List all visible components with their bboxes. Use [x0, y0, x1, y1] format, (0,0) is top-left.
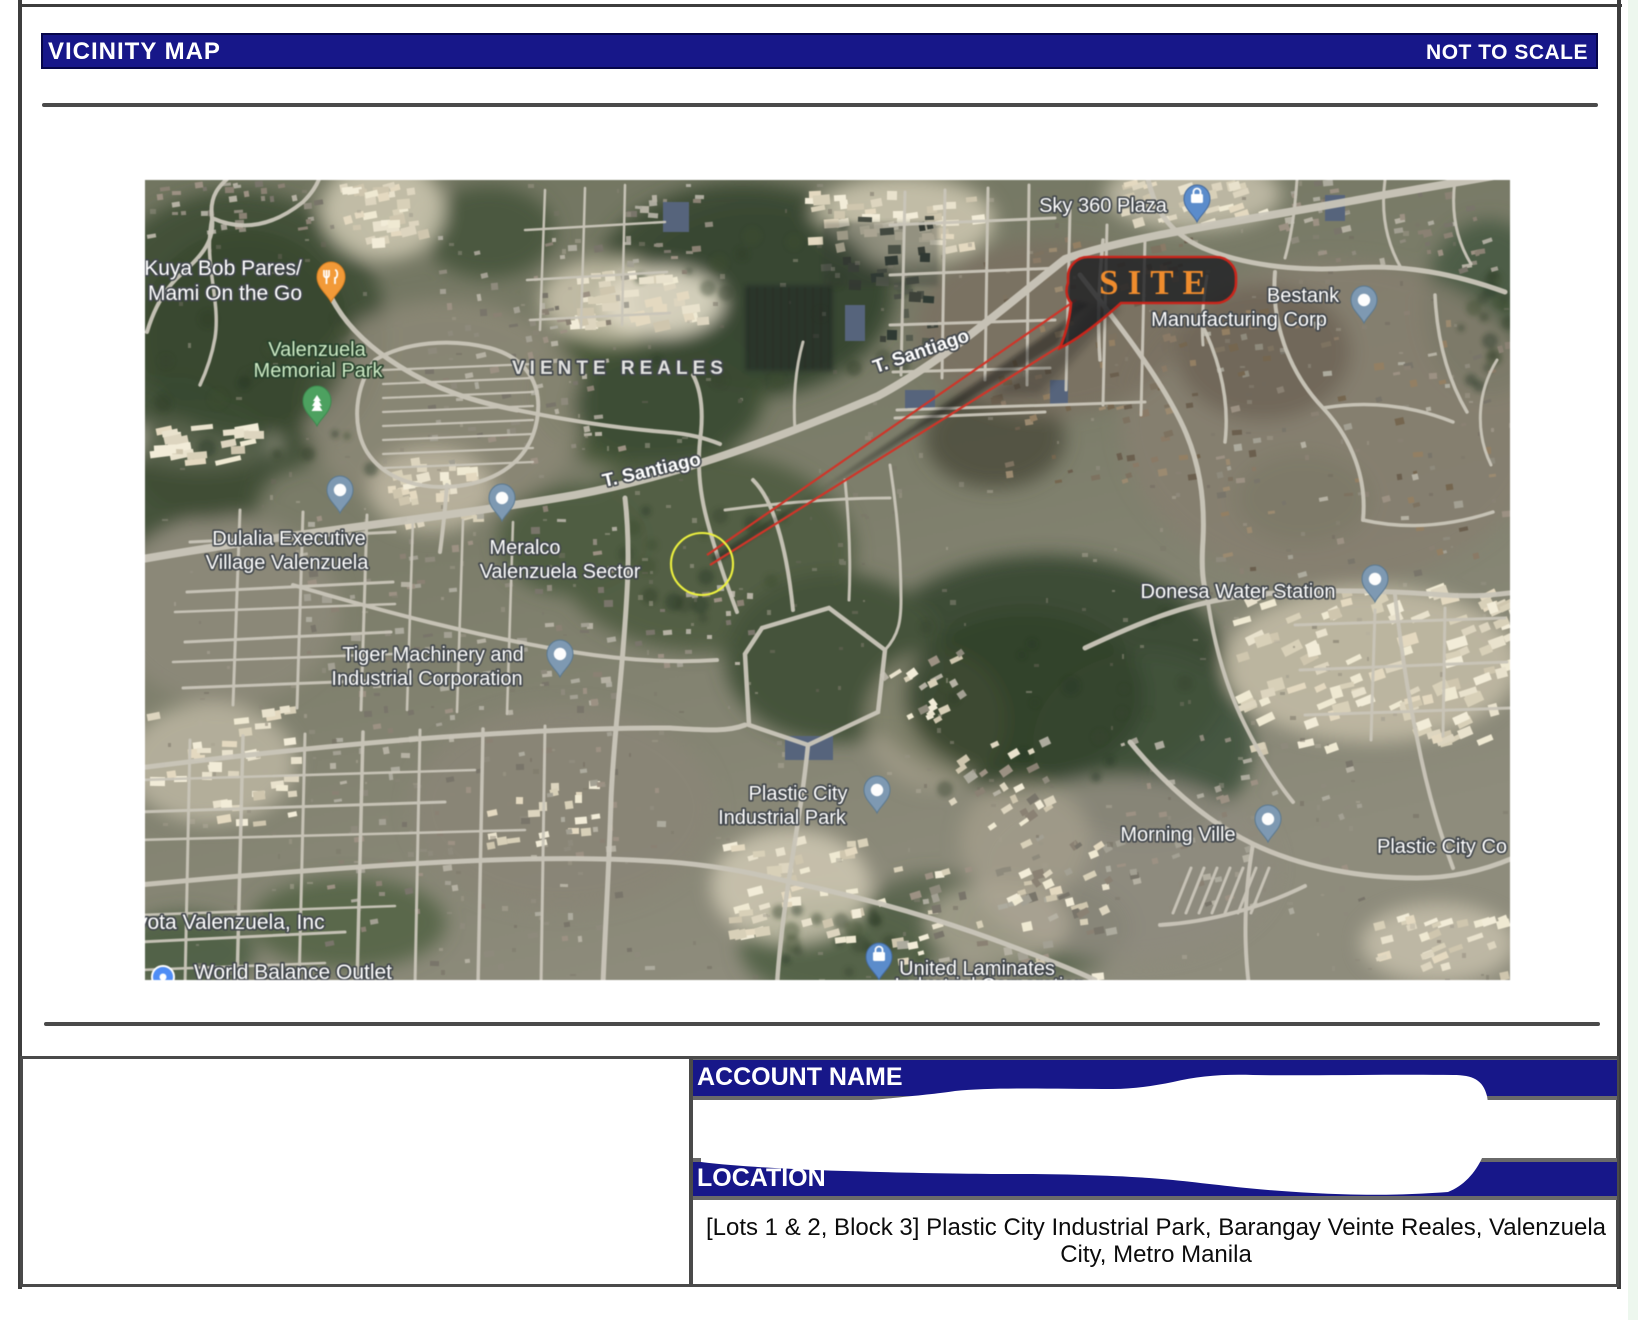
- svg-text:Morning Ville: Morning Ville: [1120, 824, 1235, 846]
- svg-text:Mami On the Go: Mami On the Go: [148, 282, 302, 305]
- svg-text:Industrial Corporation: Industrial Corporation: [894, 975, 1085, 980]
- svg-text:Manufacturing Corp: Manufacturing Corp: [1151, 309, 1327, 331]
- svg-text:SITE: SITE: [1099, 263, 1215, 302]
- svg-text:Valenzuela Sector: Valenzuela Sector: [480, 561, 641, 583]
- svg-text:Kuya Bob Pares/: Kuya Bob Pares/: [145, 257, 302, 280]
- svg-text:Memorial Park: Memorial Park: [254, 360, 384, 382]
- svg-text:VIENTE REALES: VIENTE REALES: [512, 358, 728, 379]
- svg-text:Plastic City: Plastic City: [749, 783, 848, 805]
- svg-text:Donesa Water Station: Donesa Water Station: [1141, 581, 1336, 603]
- svg-text:Bestank: Bestank: [1267, 285, 1340, 307]
- svg-text:Industrial Park: Industrial Park: [718, 807, 847, 829]
- svg-text:Tiger Machinery and: Tiger Machinery and: [342, 644, 524, 666]
- svg-text:Dulalia Executive: Dulalia Executive: [212, 528, 365, 550]
- svg-text:Sky 360 Plaza: Sky 360 Plaza: [1039, 195, 1168, 217]
- svg-text:Meralco: Meralco: [489, 537, 560, 559]
- svg-text:Valenzuela: Valenzuela: [268, 339, 366, 361]
- svg-text:World Balance Outlet: World Balance Outlet: [194, 961, 392, 980]
- svg-text:Plastic City Co: Plastic City Co: [1377, 836, 1507, 858]
- svg-text:Industrial Corporation: Industrial Corporation: [331, 668, 522, 690]
- svg-text:Village Valenzuela: Village Valenzuela: [206, 552, 370, 574]
- svg-text:yota Valenzuela, Inc: yota Valenzuela, Inc: [145, 911, 325, 934]
